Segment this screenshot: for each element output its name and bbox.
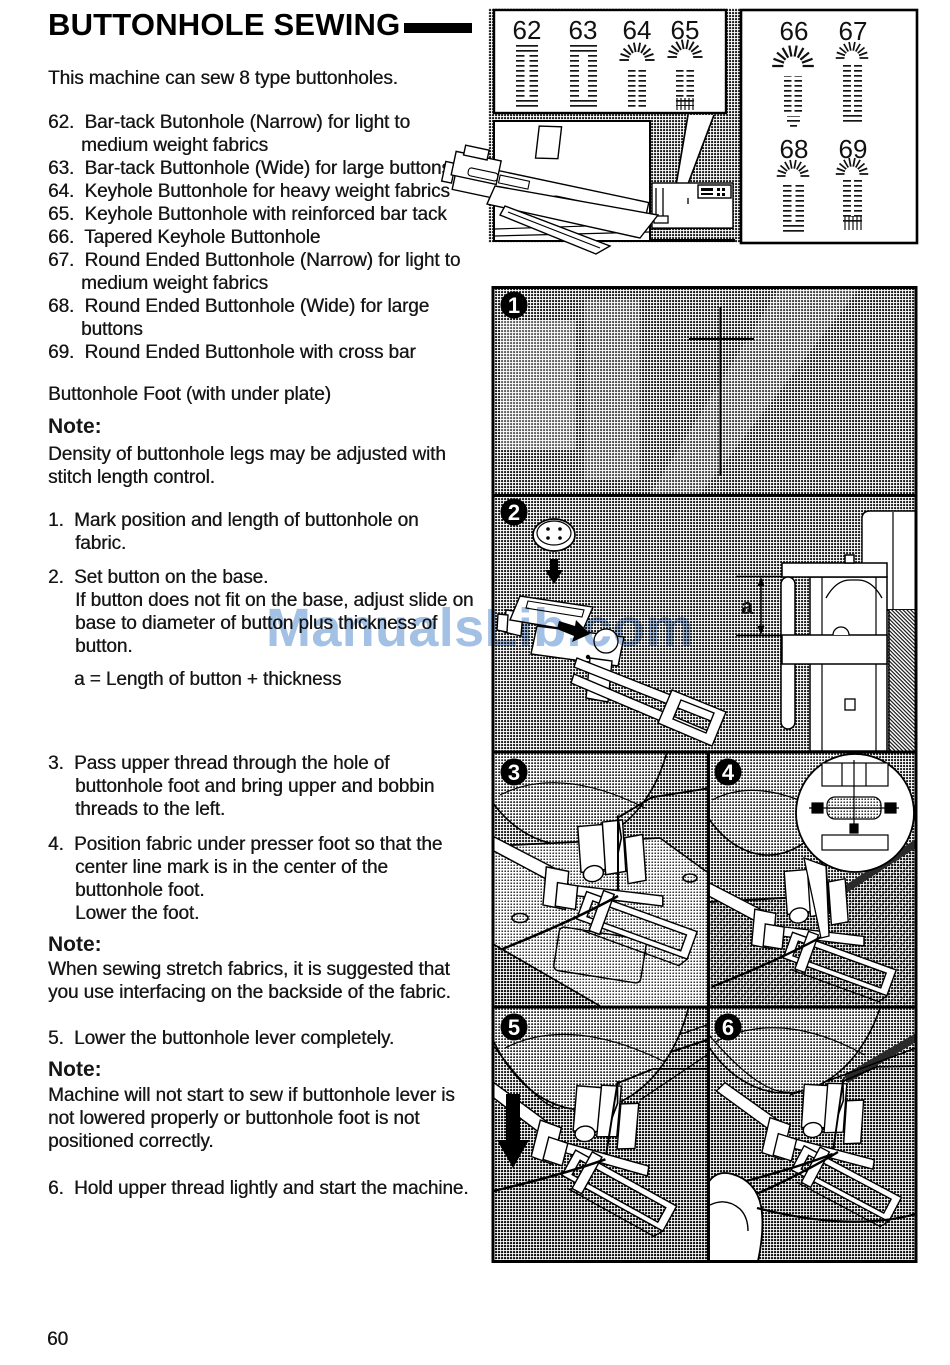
svg-text:62: 62 (513, 15, 542, 45)
svg-text:a: a (741, 594, 754, 619)
svg-text:69: 69 (839, 134, 868, 164)
svg-text:63: 63 (569, 15, 598, 45)
svg-text:65: 65 (671, 15, 700, 45)
svg-text:68: 68 (780, 134, 809, 164)
svg-text:64: 64 (623, 15, 652, 45)
svg-text:3: 3 (508, 760, 520, 785)
svg-text:2: 2 (508, 500, 520, 525)
svg-text:67: 67 (839, 16, 868, 46)
svg-text:5: 5 (508, 1015, 520, 1040)
svg-text:1: 1 (508, 293, 520, 318)
svg-text:6: 6 (722, 1015, 734, 1040)
svg-text:4: 4 (722, 760, 735, 785)
svg-text:66: 66 (780, 16, 809, 46)
